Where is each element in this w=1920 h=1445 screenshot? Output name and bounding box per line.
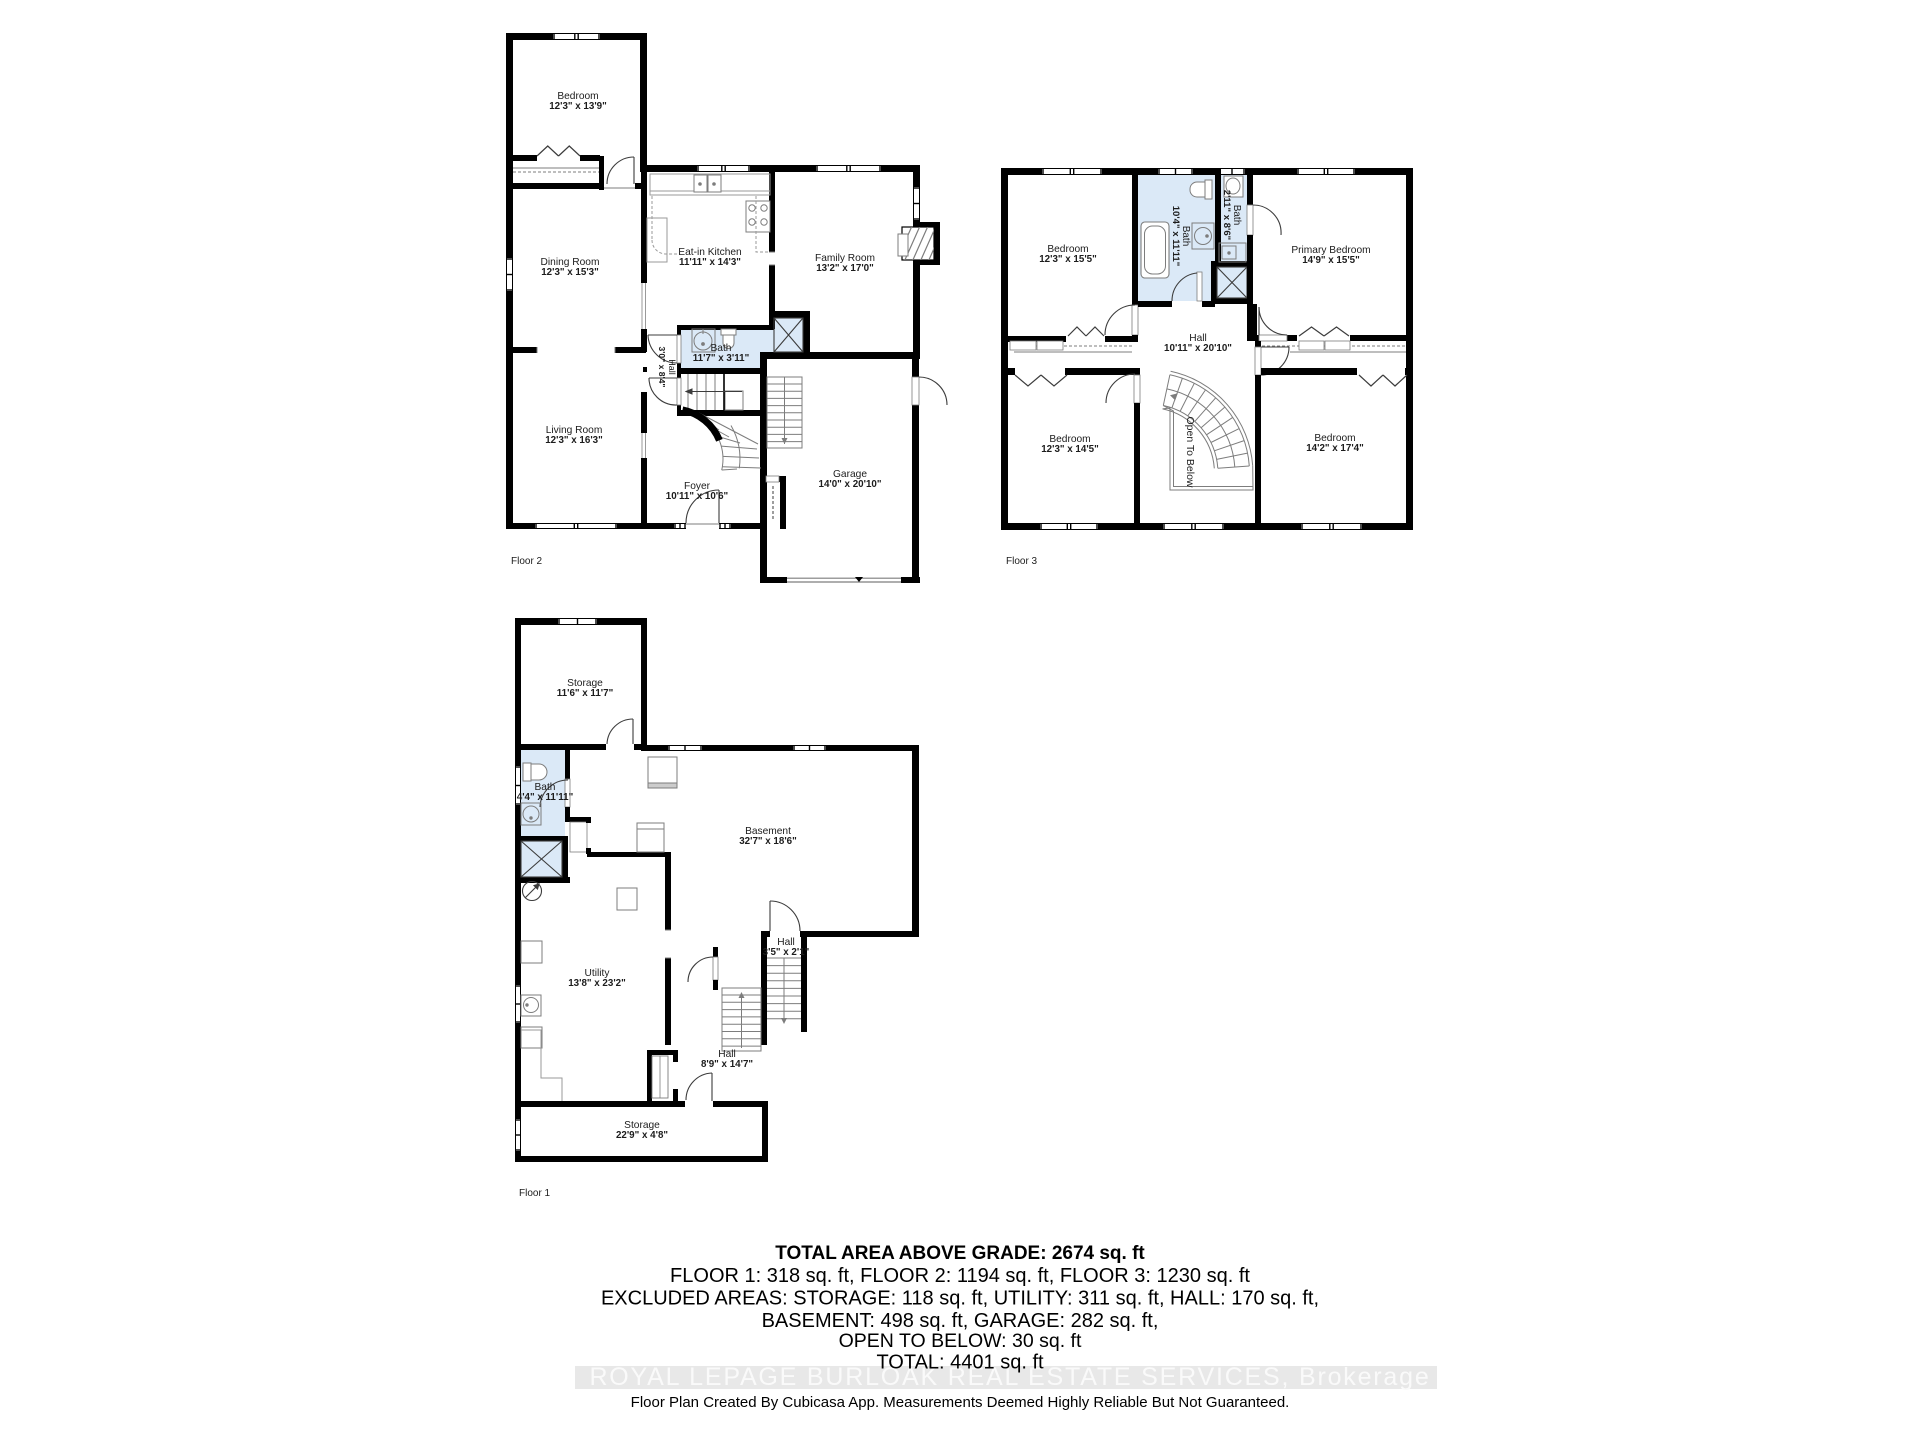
svg-text:Open To Below: Open To Below — [1184, 416, 1196, 487]
svg-text:12'3" x 14'5": 12'3" x 14'5" — [1041, 444, 1099, 455]
svg-text:FLOOR 1: 318 sq. ft, FLOOR 2:: FLOOR 1: 318 sq. ft, FLOOR 2: 1194 sq. f… — [670, 1265, 1250, 1287]
svg-text:Floor 1: Floor 1 — [519, 1188, 551, 1199]
svg-text:TOTAL AREA ABOVE GRADE: 2674 s: TOTAL AREA ABOVE GRADE: 2674 sq. ft — [775, 1243, 1145, 1264]
svg-text:22'9" x 4'8": 22'9" x 4'8" — [616, 1130, 668, 1141]
svg-text:12'3" x 13'9": 12'3" x 13'9" — [549, 101, 607, 112]
svg-text:Floor 2: Floor 2 — [511, 556, 543, 567]
svg-text:3'0" x 8'4": 3'0" x 8'4" — [657, 347, 667, 388]
svg-text:10'4" x 11'11": 10'4" x 11'11" — [1170, 206, 1181, 267]
svg-text:12'3" x 16'3": 12'3" x 16'3" — [545, 435, 603, 446]
svg-text:10'11" x 10'6": 10'11" x 10'6" — [666, 491, 728, 502]
svg-text:TOTAL: 4401 sq. ft: TOTAL: 4401 sq. ft — [876, 1352, 1044, 1374]
svg-text:13'2" x 17'0": 13'2" x 17'0" — [816, 263, 874, 274]
svg-text:10'11" x 20'10": 10'11" x 20'10" — [1164, 343, 1232, 354]
svg-text:Floor Plan Created By Cubicasa: Floor Plan Created By Cubicasa App. Meas… — [631, 1394, 1290, 1411]
svg-text:11'11" x 14'3": 11'11" x 14'3" — [679, 257, 741, 268]
svg-text:Floor 3: Floor 3 — [1006, 556, 1038, 567]
svg-text:2'11" x 8'6": 2'11" x 8'6" — [1221, 190, 1232, 240]
svg-text:12'3" x 15'3": 12'3" x 15'3" — [541, 267, 599, 278]
svg-text:14'2" x 17'4": 14'2" x 17'4" — [1306, 443, 1364, 454]
svg-text:11'7" x 3'11": 11'7" x 3'11" — [693, 353, 749, 364]
svg-text:32'7" x 18'6": 32'7" x 18'6" — [739, 836, 797, 847]
svg-text:Hall: Hall — [667, 359, 677, 375]
svg-text:EXCLUDED AREAS: STORAGE: 118 s: EXCLUDED AREAS: STORAGE: 118 sq. ft, UTI… — [601, 1288, 1319, 1310]
svg-text:OPEN TO BELOW: 30 sq. ft: OPEN TO BELOW: 30 sq. ft — [839, 1330, 1082, 1352]
svg-text:BASEMENT: 498 sq. ft, GARAGE:: BASEMENT: 498 sq. ft, GARAGE: 282 sq. ft… — [762, 1310, 1159, 1332]
svg-text:3'5" x 2'1": 3'5" x 2'1" — [763, 947, 810, 958]
svg-text:11'6" x 11'7": 11'6" x 11'7" — [557, 688, 613, 699]
svg-text:8'9" x 14'7": 8'9" x 14'7" — [701, 1059, 753, 1070]
svg-text:14'0" x 20'10": 14'0" x 20'10" — [819, 479, 882, 490]
svg-text:12'3" x 15'5": 12'3" x 15'5" — [1039, 254, 1097, 265]
svg-text:14'9" x 15'5": 14'9" x 15'5" — [1302, 255, 1360, 266]
svg-text:4'4" x 11'11": 4'4" x 11'11" — [517, 792, 573, 803]
svg-text:13'8" x 23'2": 13'8" x 23'2" — [568, 978, 626, 989]
